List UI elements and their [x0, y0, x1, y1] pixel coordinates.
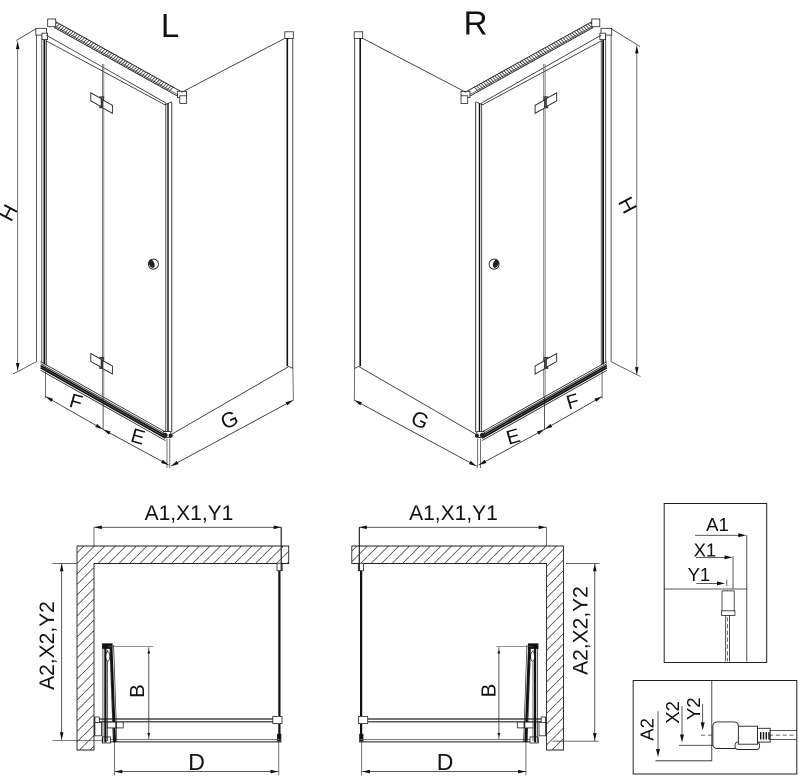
svg-text:A1,X1,Y1: A1,X1,Y1: [409, 502, 498, 525]
svg-text:A2,X2,Y2: A2,X2,Y2: [570, 586, 593, 675]
svg-text:X2: X2: [662, 701, 683, 724]
svg-text:D: D: [188, 749, 205, 775]
svg-text:L: L: [161, 7, 179, 44]
svg-text:A2: A2: [637, 718, 658, 741]
svg-text:Y2: Y2: [683, 697, 704, 720]
svg-text:X1: X1: [694, 540, 717, 561]
svg-text:R: R: [464, 5, 488, 42]
svg-text:A1: A1: [706, 514, 729, 535]
svg-text:A2,X2,Y2: A2,X2,Y2: [36, 601, 59, 690]
svg-text:D: D: [437, 749, 454, 775]
svg-text:B: B: [126, 684, 149, 698]
svg-text:A1,X1,Y1: A1,X1,Y1: [145, 502, 234, 525]
svg-text:B: B: [477, 684, 500, 698]
svg-text:Y1: Y1: [688, 564, 711, 585]
